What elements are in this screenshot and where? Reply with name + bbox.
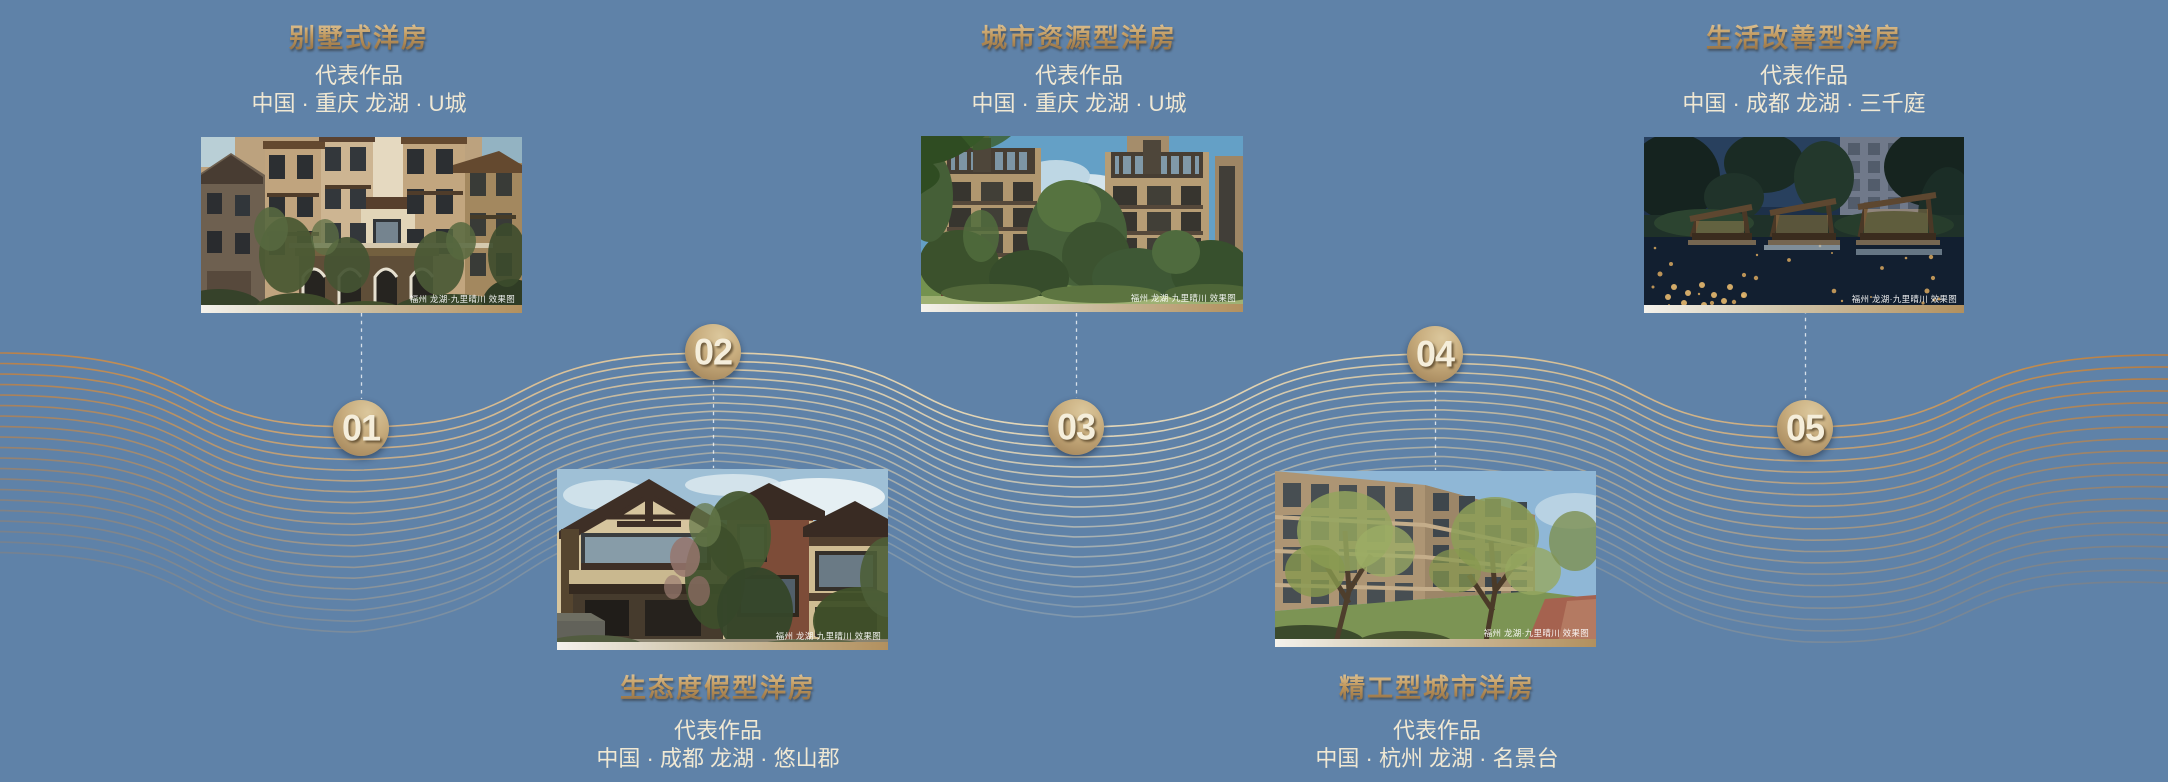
svg-text:福州 龙湖·九里晴川 效果图: 福州 龙湖·九里晴川 效果图 <box>1131 293 1236 303</box>
svg-text:福州 龙湖·九里晴川 效果图: 福州 龙湖·九里晴川 效果图 <box>776 631 881 641</box>
svg-text:福州 龙湖·九里晴川 效果图: 福州 龙湖·九里晴川 效果图 <box>410 294 515 304</box>
svg-text:福州 龙湖·九里晴川 效果图: 福州 龙湖·九里晴川 效果图 <box>1852 294 1957 304</box>
svg-text:福州 龙湖·九里晴川 效果图: 福州 龙湖·九里晴川 效果图 <box>1484 628 1589 638</box>
